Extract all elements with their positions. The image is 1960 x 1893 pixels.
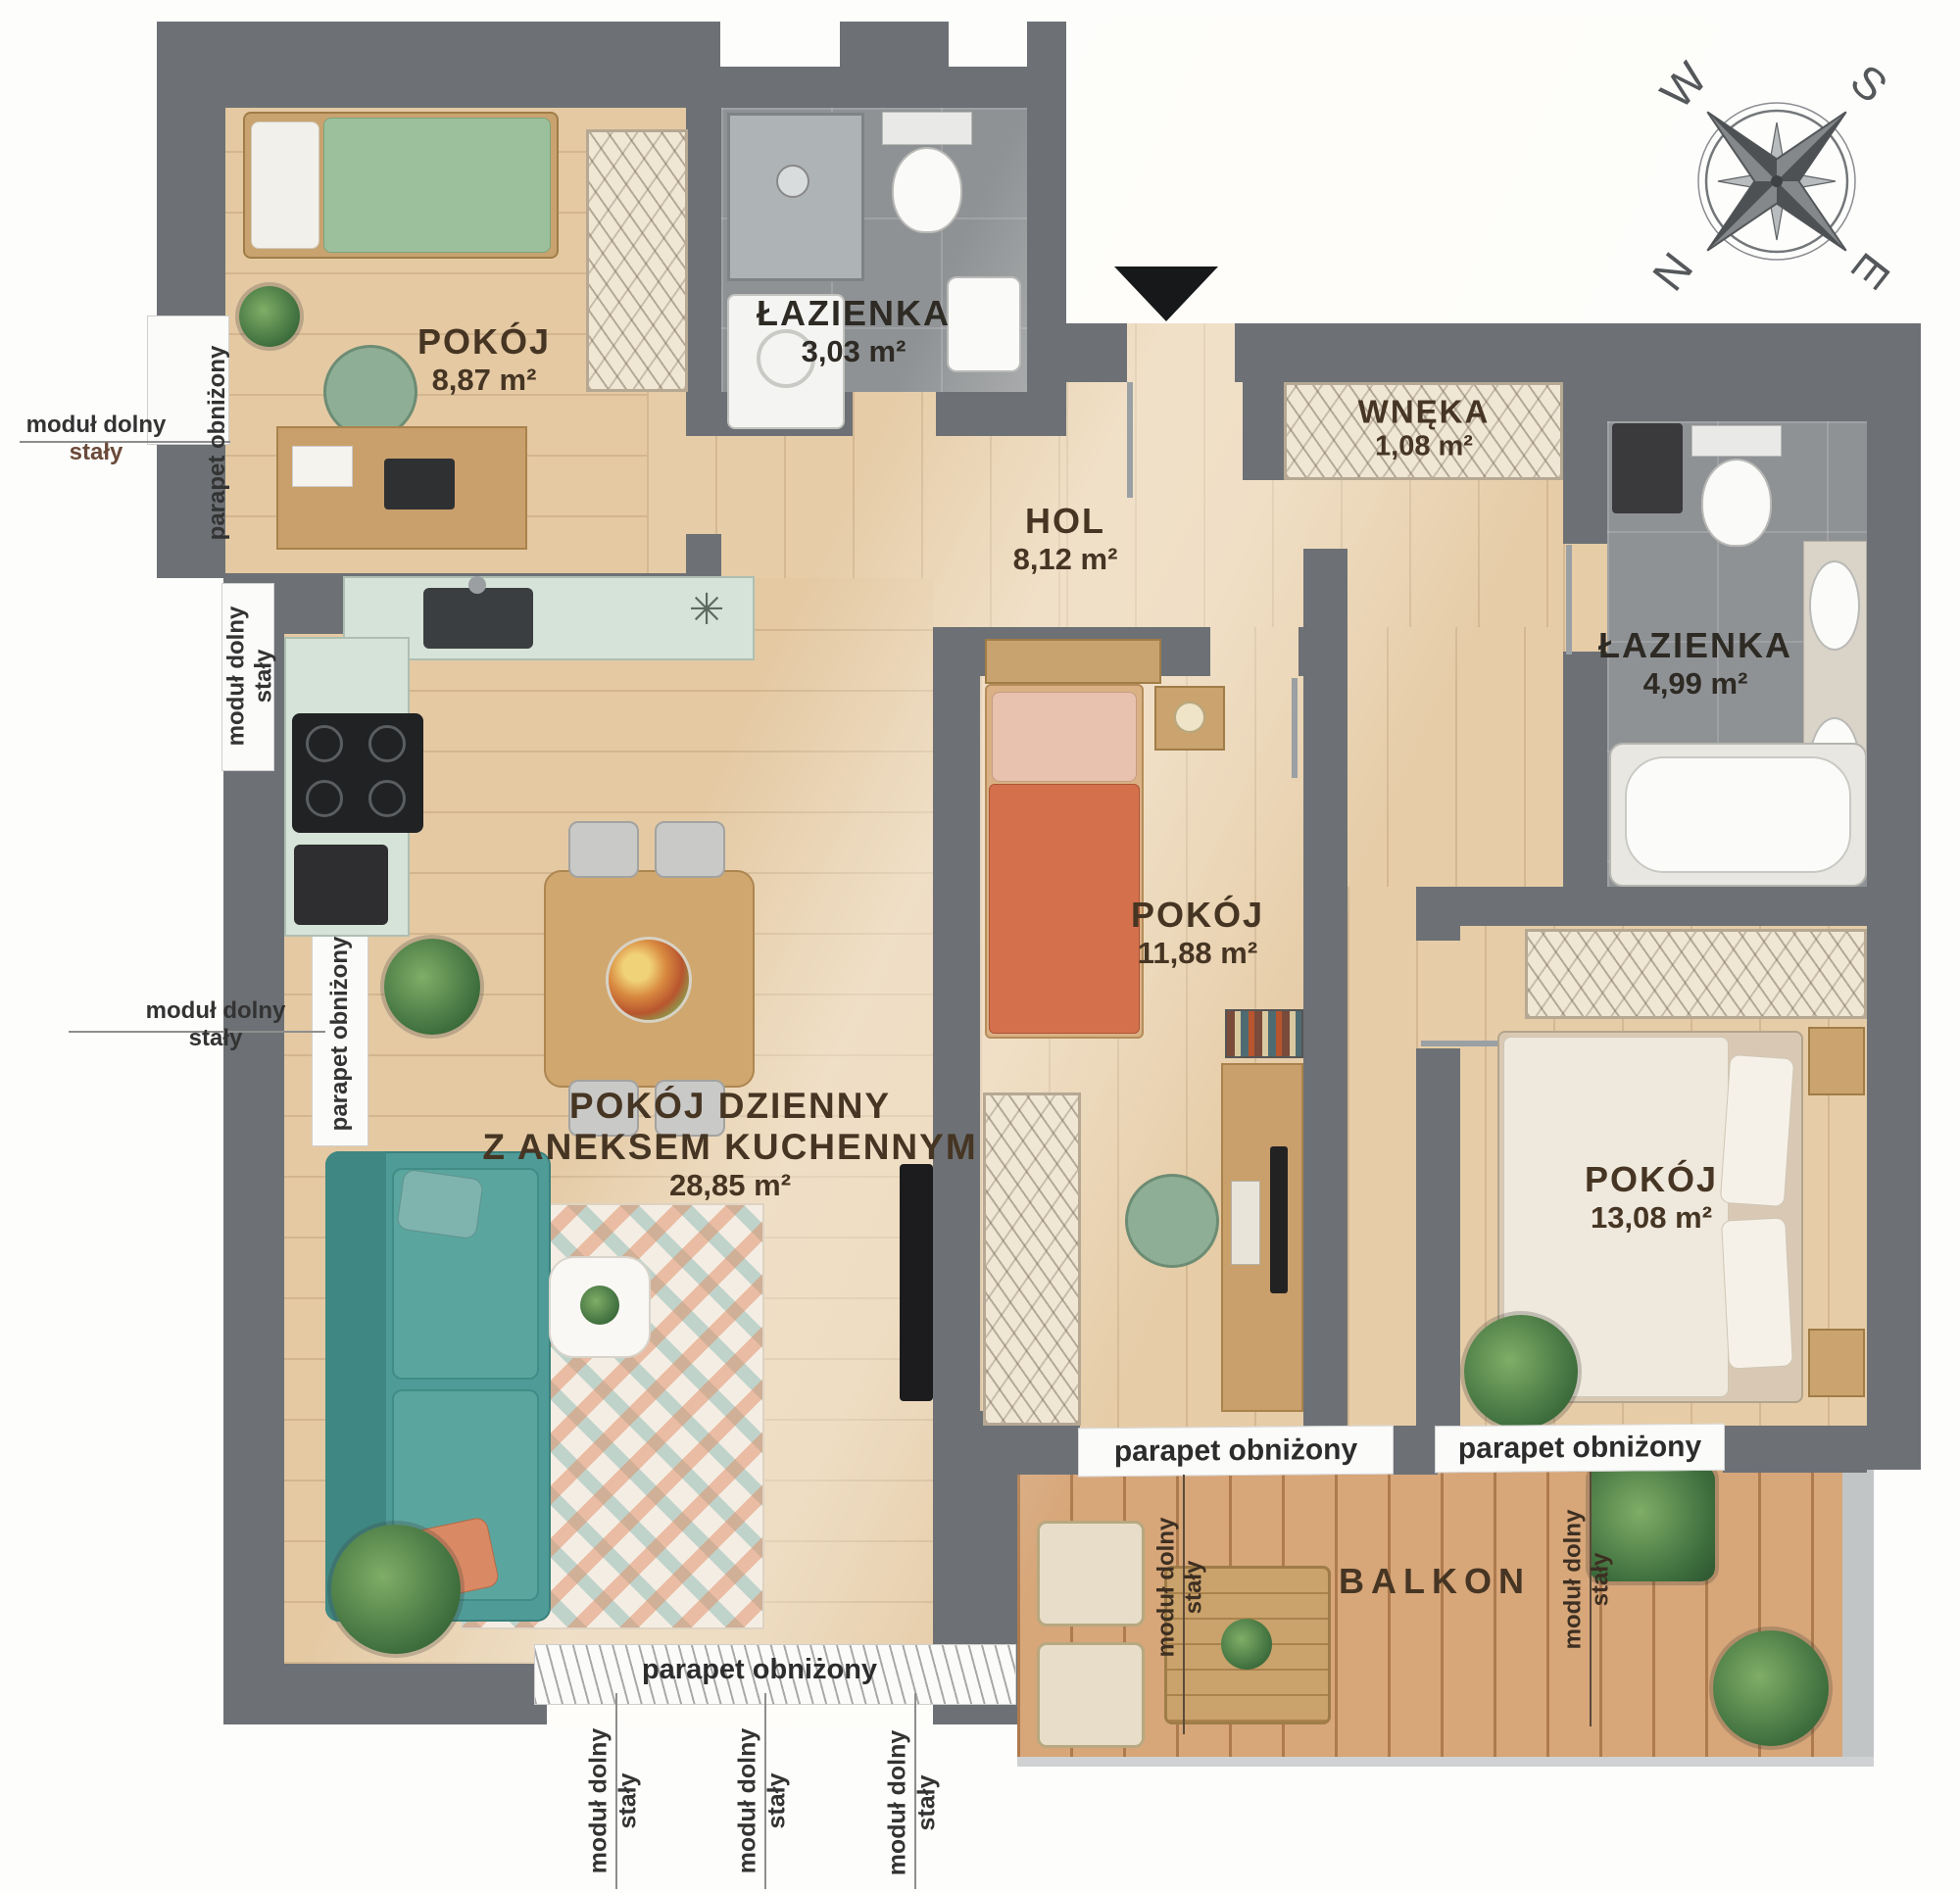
label-room3-name: POKÓJ (1585, 1159, 1718, 1200)
bath2-cabinet (1612, 423, 1683, 513)
label-bathroom1: ŁAZIENKA 3,03 m² (757, 293, 951, 369)
wardrobe-room3 (1525, 929, 1867, 1019)
entrance-arrow-icon (1114, 267, 1218, 321)
ann-modul-topleft-l1: moduł dolny (26, 412, 167, 438)
dining-chair-1 (568, 821, 639, 878)
compass-rose: W S N E (1654, 57, 1899, 302)
wall-bath1-left (686, 108, 721, 372)
parapet-bar-room2-label: parapet obniżony (1114, 1433, 1357, 1469)
ann-modul-bottom-2-l1: moduł dolny (734, 1728, 761, 1874)
label-living: POKÓJ DZIENNY Z ANEKSEM KUCHENNYM 28,85 … (482, 1086, 977, 1203)
wall-room3-top (1416, 887, 1867, 926)
bathtub-inner (1625, 756, 1851, 873)
label-room2: POKÓJ 11,88 m² (1131, 895, 1264, 971)
bookshelf-room2 (1225, 1009, 1303, 1058)
room2-door-leaf (1292, 678, 1298, 778)
floorplan-page: { "rooms": { "pokoj1": {"name": "POKÓJ",… (0, 0, 1960, 1893)
wall-balcony-stub-mid (1392, 1426, 1438, 1475)
label-room2-name: POKÓJ (1131, 895, 1264, 936)
wall-wneka-left (1243, 380, 1284, 480)
toilet2-bowl (1701, 459, 1772, 547)
ann-modul-bottom-3-l1: moduł dolny (884, 1730, 911, 1876)
label-wneka: WNĘKA 1,08 m² (1358, 394, 1491, 463)
wall-room3-left-upper (1416, 926, 1460, 941)
label-bathroom1-name: ŁAZIENKA (757, 293, 951, 334)
floor-hol-extension (1318, 627, 1563, 887)
label-bathroom2: ŁAZIENKA 4,99 m² (1598, 625, 1792, 702)
nightstand-room3-bottom (1808, 1329, 1865, 1397)
coffee-table-plant (580, 1286, 619, 1325)
balcony-right-edge (1842, 1460, 1874, 1759)
label-living-name1: POKÓJ DZIENNY (482, 1086, 977, 1127)
bed-orange-pillow (992, 692, 1137, 782)
label-living-name2: Z ANEKSEM KUCHENNYM (482, 1127, 977, 1168)
ann-modul-bottom-3-l2: stały (912, 1775, 940, 1831)
wall-entrance-left-stub (1063, 323, 1127, 382)
ann-parapet-left-lower-text: parapet obniżony (326, 937, 353, 1132)
wall-room2-right (1303, 549, 1347, 1431)
label-room3: POKÓJ 13,08 m² (1585, 1159, 1718, 1236)
toilet2-tank (1691, 425, 1782, 457)
ann-modul-left-vert-l2: stały (251, 650, 277, 704)
dining-chair-2 (655, 821, 725, 878)
label-room3-area: 13,08 m² (1585, 1200, 1718, 1236)
plant-living-corner (331, 1525, 461, 1654)
wall-top (157, 22, 1066, 108)
kitchen-hob-symbol: ✳ (682, 586, 731, 635)
shower-head (776, 165, 809, 198)
ann-modul-left-vert-l1: moduł dolny (223, 607, 250, 747)
bed-green-pillow (251, 121, 319, 249)
ann-parapet-bottom-text: parapet obniżony (642, 1654, 877, 1685)
sink-oval-1 (1809, 560, 1860, 651)
ann-modul-bottom-1: moduł dolny stały (585, 1728, 643, 1874)
fruit-bowl (606, 937, 692, 1023)
label-wneka-area: 1,08 m² (1358, 431, 1491, 463)
wall-room1-right-stub (686, 534, 721, 578)
sofa-pillow-teal (396, 1169, 484, 1240)
label-hol: HOL 8,12 m² (1013, 501, 1118, 577)
wall-living-bottom (223, 1664, 547, 1724)
ann-modul-topleft-l2: stały (70, 439, 123, 465)
balcony-plant-bottom (1713, 1630, 1829, 1746)
wall-wneka-right (1563, 323, 1607, 544)
ann-modul-topleft: moduł dolny stały (18, 412, 174, 467)
cooktop-burner-2 (368, 725, 406, 762)
lamp-room2 (1174, 702, 1205, 733)
wardrobe-room1 (586, 129, 688, 392)
desk-chair-room1 (323, 345, 417, 439)
label-living-area: 28,85 m² (482, 1168, 977, 1203)
ann-modul-balcony-2-l2: stały (1588, 1553, 1614, 1607)
papers-room1 (292, 446, 353, 487)
balcony-bottom-edge (1017, 1757, 1874, 1767)
coffee-machine (294, 845, 388, 925)
headboard-shelf-room2 (985, 639, 1161, 684)
label-hol-area: 8,12 m² (1013, 542, 1118, 577)
label-room1-area: 8,87 m² (417, 363, 551, 398)
balcony-chair-2 (1037, 1642, 1145, 1748)
ann-modul-bottom-2-l2: stały (762, 1773, 790, 1829)
sink-bath1 (947, 276, 1021, 372)
wall-balcony-stub-right (1723, 1426, 1867, 1473)
bed-orange-blanket (989, 784, 1140, 1034)
bath2-door-leaf (1566, 545, 1572, 655)
ann-modul-balcony-2: moduł dolny stały (1560, 1510, 1616, 1650)
label-balkon-name: BALKON (1339, 1561, 1531, 1602)
wall-right-outer (1867, 323, 1921, 1470)
keyboard-room2 (1231, 1181, 1260, 1265)
wall-bath1-bottom-right (936, 392, 1066, 436)
wall-topblock-right (1027, 22, 1066, 436)
kitchen-faucet (468, 576, 486, 594)
ann-modul-balcony-1-l2: stały (1181, 1561, 1207, 1615)
toilet1-bowl (892, 147, 962, 233)
plant-room3 (1464, 1315, 1578, 1429)
plant-room1 (239, 286, 300, 347)
label-bathroom2-name: ŁAZIENKA (1598, 625, 1792, 666)
toilet1-tank (882, 112, 972, 145)
ann-modul-left-vert: moduł dolny stały (223, 607, 279, 747)
bed-pillow-2 (1721, 1217, 1793, 1369)
wall-room3-left-lower (1416, 1048, 1460, 1431)
desk-chair-room2 (1125, 1174, 1219, 1268)
label-bathroom1-area: 3,03 m² (757, 334, 951, 369)
label-hol-name: HOL (1013, 501, 1118, 542)
ann-modul-midleft-l1: moduł dolny (146, 997, 286, 1024)
ann-parapet-left-upper-text: parapet obniżony (204, 346, 230, 541)
wall-balcony-stub-left (1017, 1426, 1080, 1475)
entrance-door-leaf (1127, 382, 1133, 498)
ann-modul-midleft-l2: stały (189, 1025, 243, 1051)
ann-parapet-bottom: parapet obniżony (642, 1653, 877, 1686)
parapet-bar-room3: parapet obniżony (1435, 1424, 1725, 1474)
parapet-bar-room3-label: parapet obniżony (1458, 1431, 1701, 1466)
plant-dining (384, 939, 480, 1035)
monitor-room2 (1270, 1146, 1288, 1293)
cooktop-burner-1 (306, 725, 343, 762)
label-bathroom2-area: 4,99 m² (1598, 666, 1792, 702)
cooktop-burner-3 (306, 780, 343, 817)
label-room1-name: POKÓJ (417, 321, 551, 363)
ann-modul-balcony-1-l1: moduł dolny (1153, 1518, 1180, 1658)
kitchen-sink (423, 588, 533, 649)
ann-parapet-left-upper: parapet obniżony (204, 346, 231, 541)
ann-modul-balcony-2-l1: moduł dolny (1560, 1510, 1587, 1650)
ann-modul-bottom-2: moduł dolny stały (734, 1728, 792, 1874)
bed-pillow-1 (1720, 1054, 1794, 1207)
wardrobe-room2 (983, 1092, 1081, 1426)
nightstand-room3-top (1808, 1027, 1865, 1095)
balcony-table-plant (1221, 1619, 1272, 1670)
label-wneka-name: WNĘKA (1358, 394, 1491, 431)
balcony-chair-1 (1037, 1521, 1145, 1626)
ann-modul-balcony-1: moduł dolny stały (1153, 1518, 1209, 1658)
parapet-bar-room2: parapet obniżony (1078, 1426, 1394, 1478)
ann-parapet-left-lower: parapet obniżony (326, 937, 354, 1132)
ann-modul-bottom-1-l2: stały (613, 1773, 641, 1829)
bed-green-blanket (323, 118, 551, 253)
wall-top-notch2 (949, 22, 1027, 67)
ann-modul-bottom-3: moduł dolny stały (884, 1730, 942, 1876)
floor-hol-strip (1347, 887, 1416, 1431)
laptop-room1 (384, 459, 455, 510)
label-balkon: BALKON (1339, 1561, 1531, 1602)
label-room1: POKÓJ 8,87 m² (417, 321, 551, 398)
wall-entrance-right (1235, 323, 1607, 382)
wall-living-room2 (933, 627, 980, 1431)
wall-top-notch1 (720, 22, 840, 67)
ann-modul-bottom-1-l1: moduł dolny (585, 1728, 612, 1874)
label-room2-area: 11,88 m² (1131, 936, 1264, 971)
cooktop-burner-4 (368, 780, 406, 817)
ann-modul-midleft: moduł dolny stały (118, 997, 314, 1053)
